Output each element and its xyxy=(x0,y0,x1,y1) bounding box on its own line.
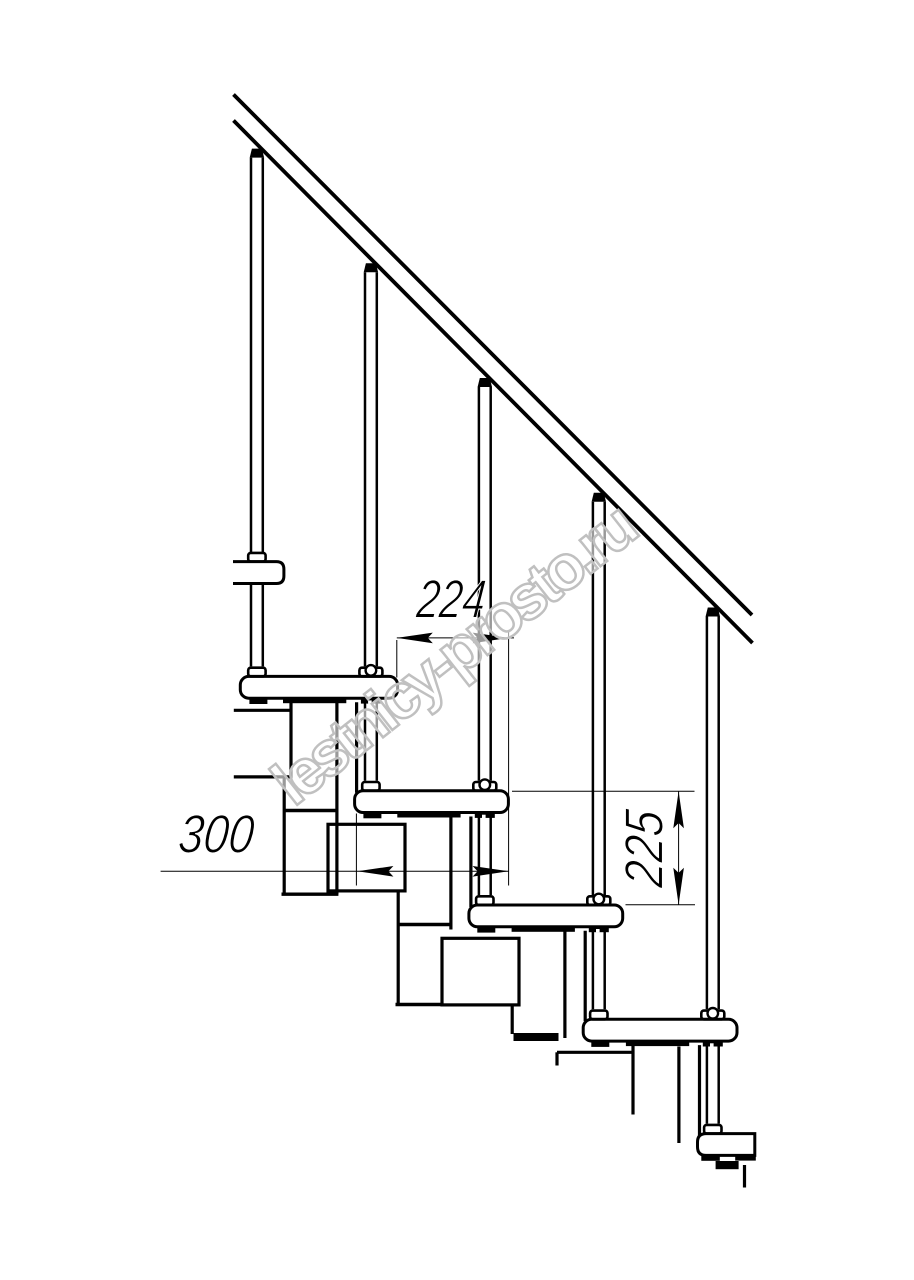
svg-text:300: 300 xyxy=(176,804,257,864)
svg-text:225: 225 xyxy=(615,806,675,890)
